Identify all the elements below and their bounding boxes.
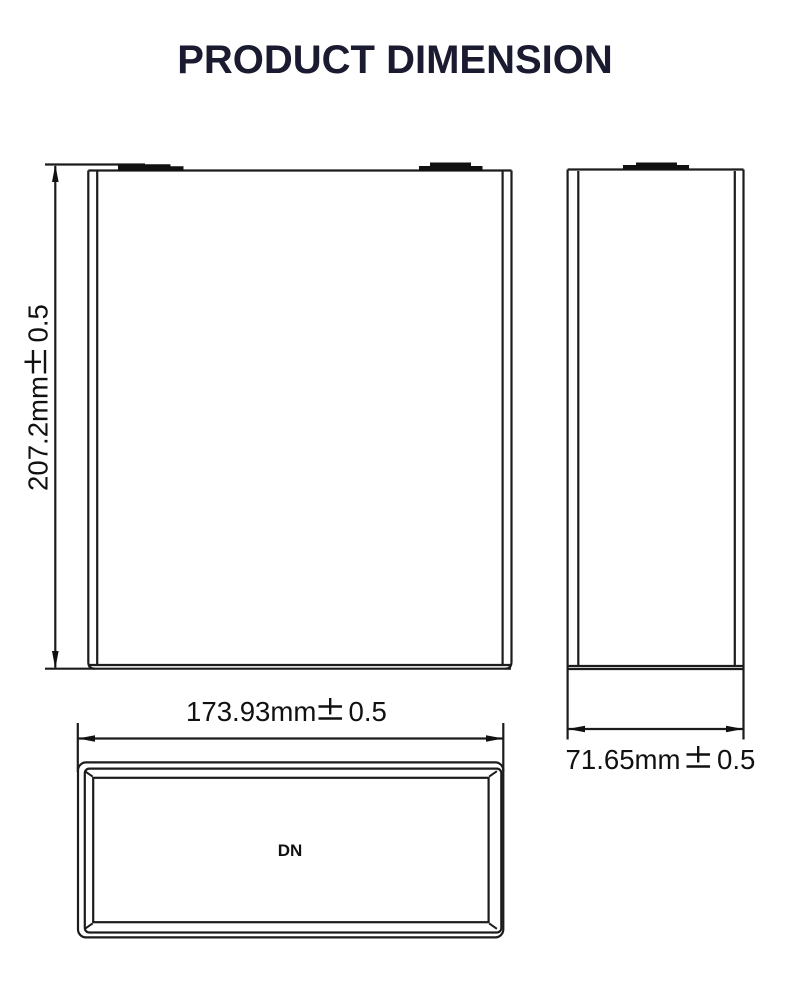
svg-text:DN: DN [278,841,303,860]
svg-text:0.5: 0.5 [349,696,387,727]
svg-text:0.5: 0.5 [23,304,54,342]
svg-text:0.5: 0.5 [717,744,755,775]
svg-text:PRODUCT DIMENSION: PRODUCT DIMENSION [177,38,613,82]
svg-text:207.2mm: 207.2mm [23,376,54,491]
svg-text:71.65mm: 71.65mm [566,744,681,775]
svg-text:173.93mm: 173.93mm [186,696,316,727]
